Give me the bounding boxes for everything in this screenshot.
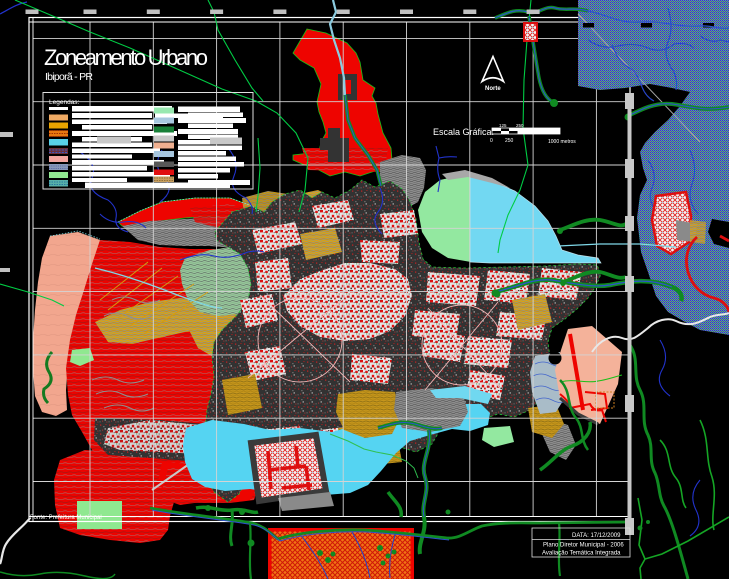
- svg-text:250: 250: [505, 138, 514, 144]
- svg-text:Fonte: Prefeitura Municipal: Fonte: Prefeitura Municipal: [30, 515, 102, 521]
- svg-text:Zoneamento Urbano: Zoneamento Urbano: [44, 45, 208, 70]
- svg-text:Escala Gráfica:: Escala Gráfica:: [433, 127, 494, 137]
- svg-text:Ibiporã - PR: Ibiporã - PR: [45, 71, 93, 83]
- svg-text:Plano Diretor Municipal - 2006: Plano Diretor Municipal - 2006: [543, 543, 624, 549]
- svg-text:Legendas:: Legendas:: [49, 99, 80, 106]
- svg-text:125: 125: [499, 123, 507, 128]
- svg-text:Avaliação Temática Integrada: Avaliação Temática Integrada: [542, 551, 621, 557]
- svg-text:Norte: Norte: [485, 86, 501, 92]
- svg-text:1000 metros: 1000 metros: [548, 139, 576, 145]
- svg-text:DATA: 17/12/2009: DATA: 17/12/2009: [572, 533, 621, 539]
- svg-text:250: 250: [516, 123, 524, 128]
- svg-text:0: 0: [490, 138, 493, 144]
